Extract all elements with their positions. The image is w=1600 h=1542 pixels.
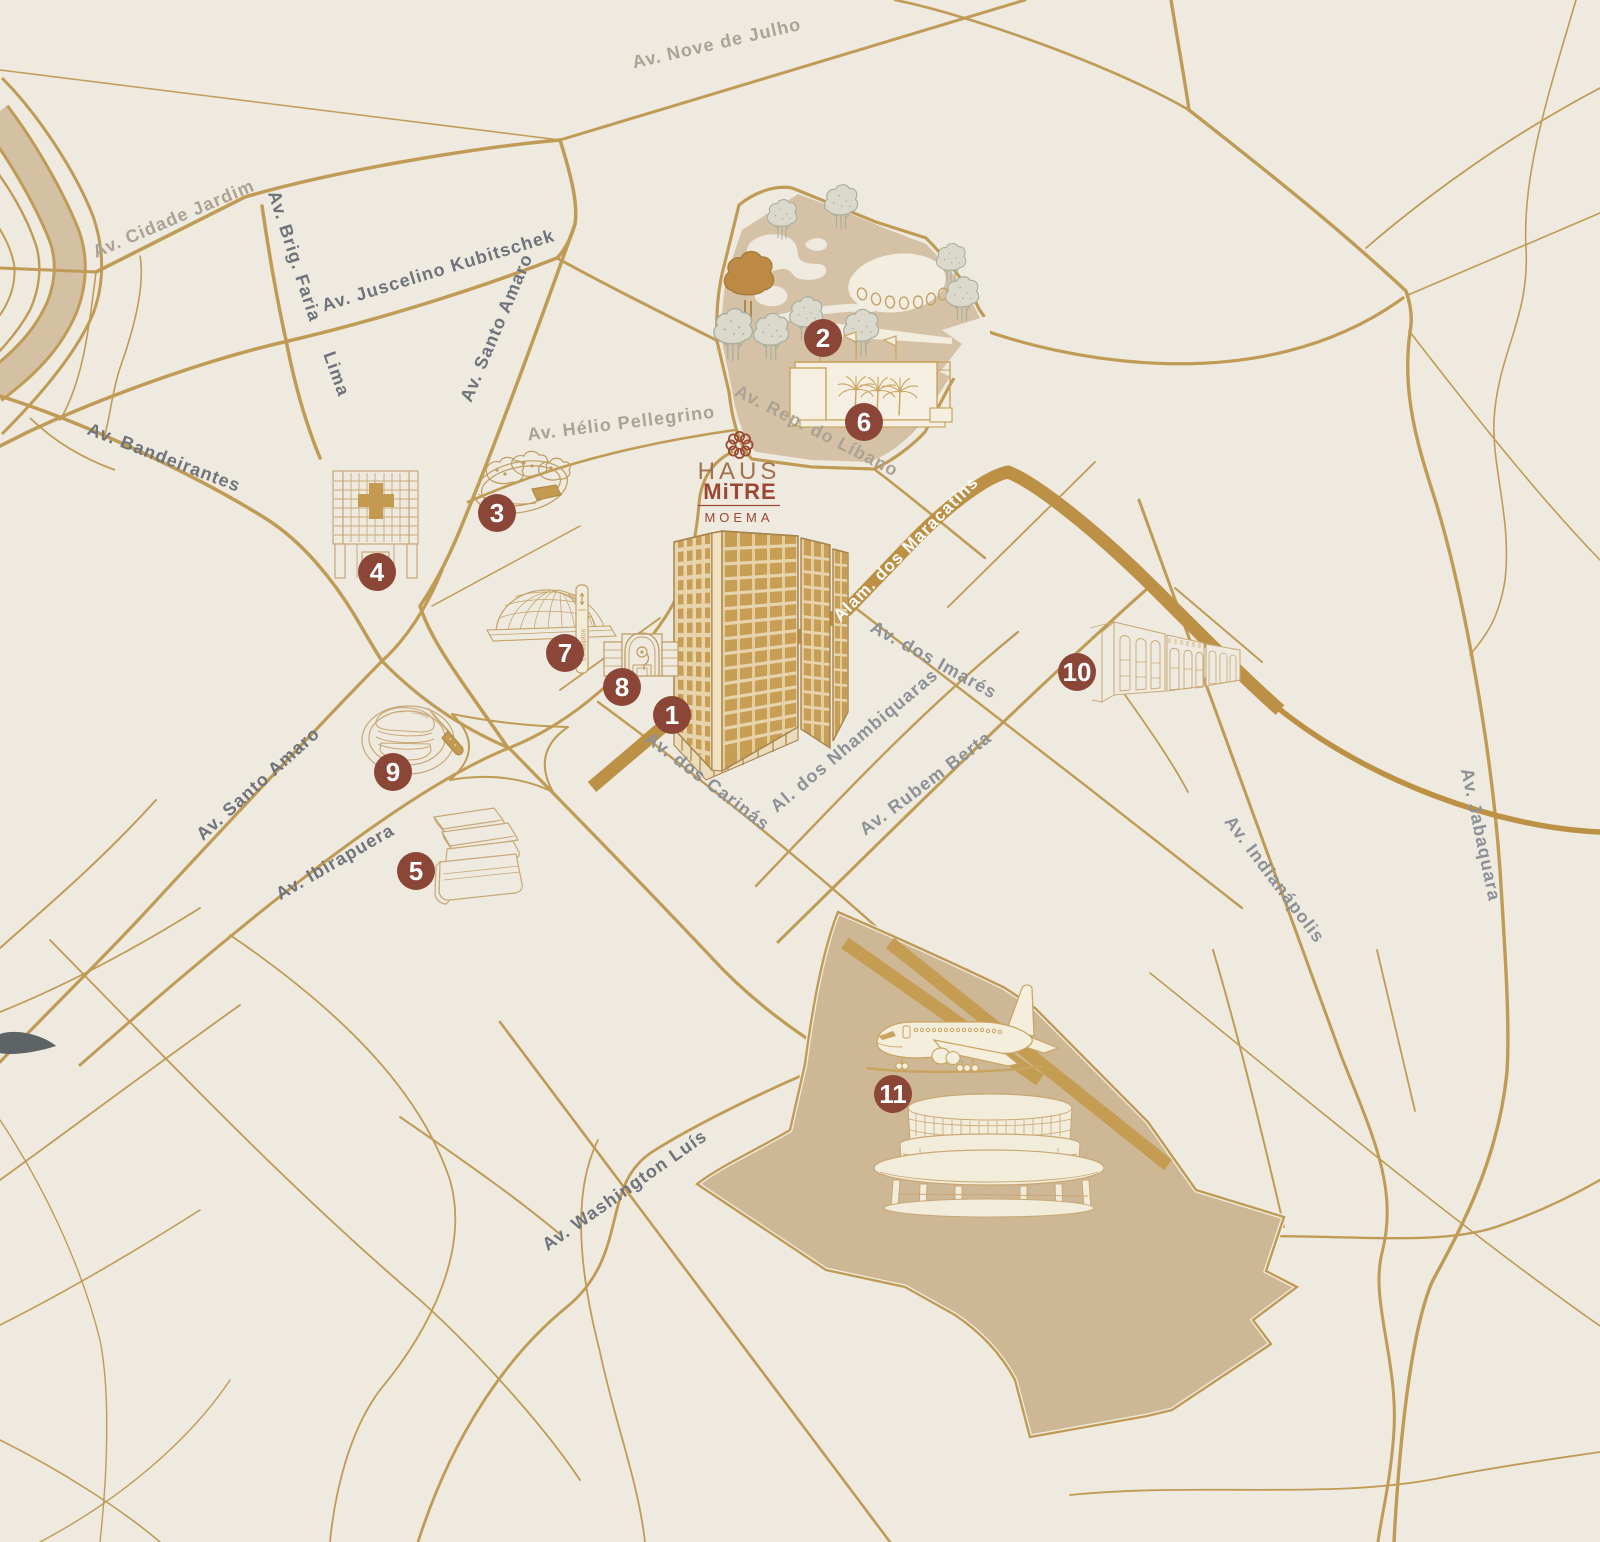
svg-text:11: 11 — [879, 1079, 907, 1109]
svg-text:9: 9 — [386, 757, 400, 787]
svg-text:1: 1 — [665, 700, 679, 730]
svg-text:5: 5 — [409, 856, 423, 886]
svg-text:10: 10 — [1063, 657, 1092, 687]
svg-text:MOEMA: MOEMA — [704, 510, 773, 525]
svg-text:4: 4 — [370, 557, 385, 587]
svg-text:MiTRE: MiTRE — [703, 479, 776, 504]
svg-text:7: 7 — [558, 638, 572, 668]
svg-text:6: 6 — [857, 407, 871, 437]
svg-text:3: 3 — [490, 498, 504, 528]
svg-text:8: 8 — [615, 672, 629, 702]
svg-text:2: 2 — [816, 323, 830, 353]
